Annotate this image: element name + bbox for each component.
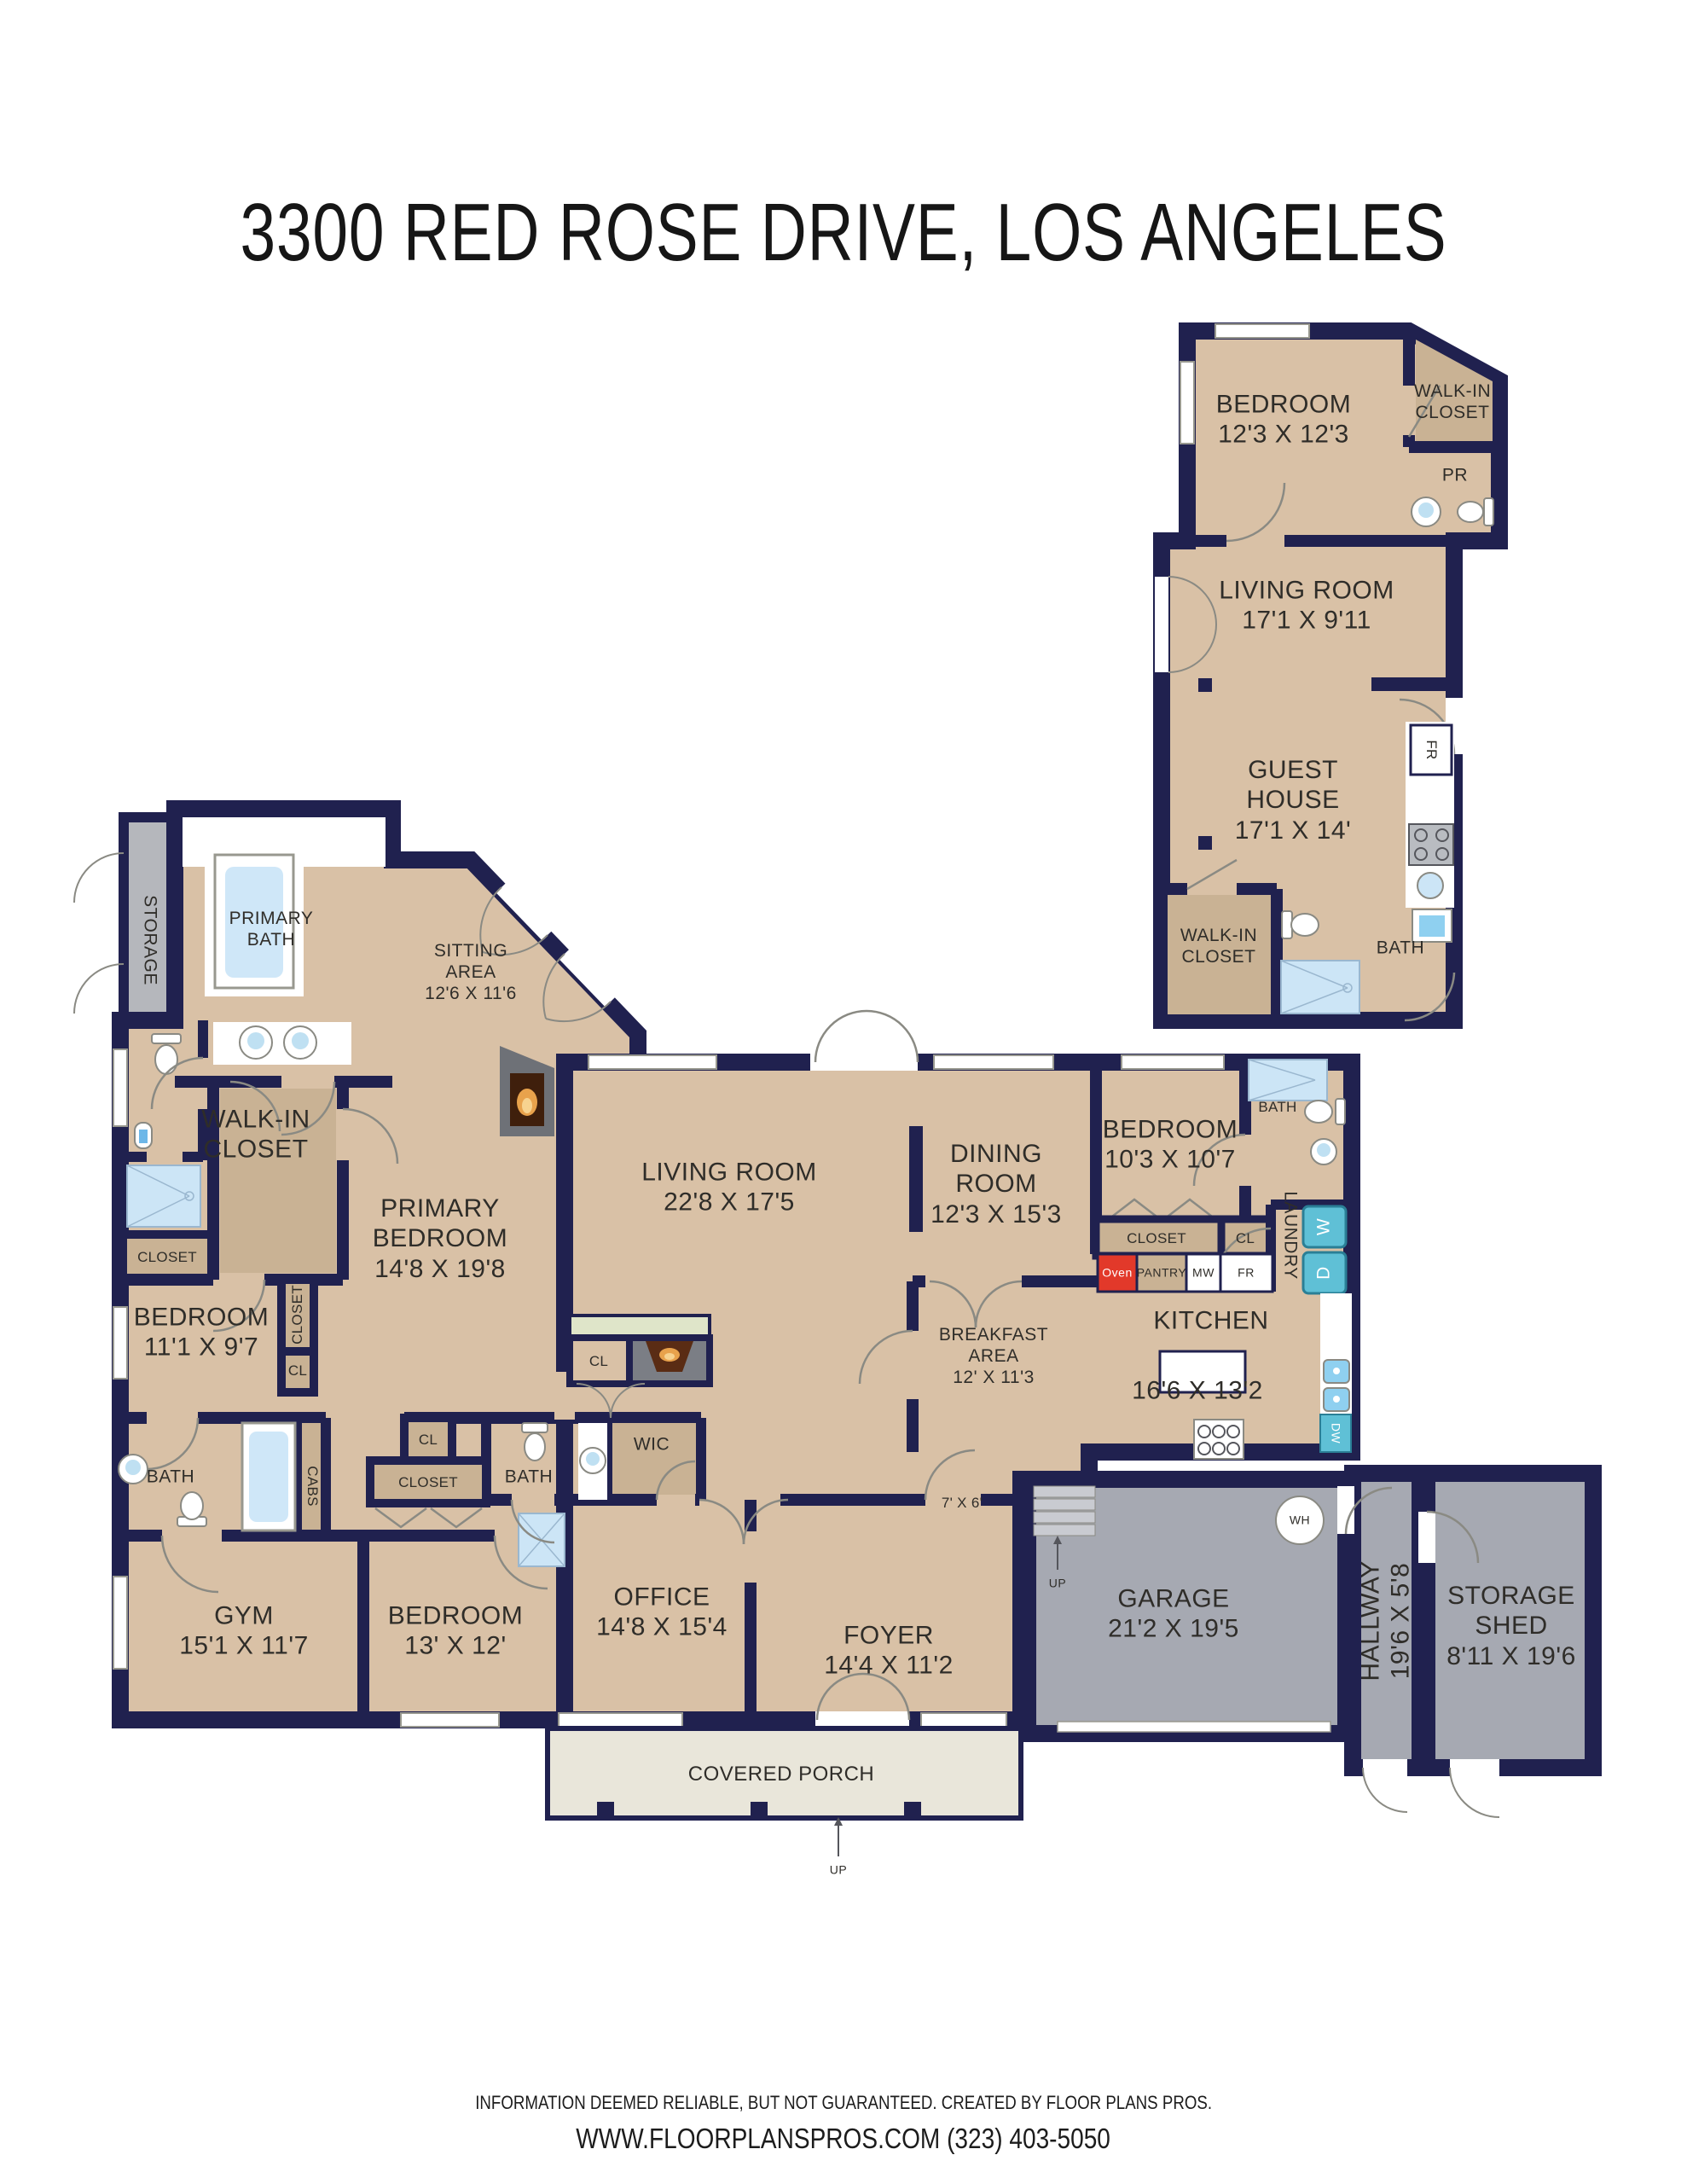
room-label-walk-in-closet: WALK-IN CLOSET [201, 1105, 310, 1165]
room-label-cl-living: CL [589, 1353, 608, 1370]
label-oven: Oven [1102, 1266, 1132, 1281]
room-label-bath1: BATH [147, 1467, 194, 1489]
room-label-guest-bedroom: BEDROOM 12'3 X 12'3 [1216, 390, 1352, 450]
living-fireplace-icon [629, 1338, 710, 1384]
label-water-heater: WH [1290, 1513, 1310, 1528]
room-label-guest-living: LIVING ROOM 17'1 X 9'11 [1219, 576, 1394, 636]
room-label-bedroom4: BEDROOM 13' X 12' [388, 1601, 524, 1662]
covered-porch-area [548, 1728, 1021, 1856]
room-label-foyer: FOYER 14'4 X 11'2 [824, 1621, 954, 1682]
room-label-gym: GYM 15'1 X 11'7 [179, 1601, 309, 1662]
label-fridge: FR [1238, 1266, 1255, 1281]
label-up-porch: UP [830, 1863, 847, 1878]
label-kitchen-dims: 16'6 X 13'2 [1132, 1375, 1263, 1405]
room-label-guest-house: GUEST HOUSE 17'1 X 14' [1235, 755, 1352, 845]
bath1-sink-icon [119, 1455, 148, 1484]
room-label-closet-left: CLOSET [137, 1249, 197, 1266]
room-label-primary-bath: PRIMARY BATH [229, 909, 314, 951]
bath2-sink-icon [580, 1448, 606, 1473]
room-label-wic2: WIC [634, 1435, 670, 1456]
room-label-kitchen: KITCHEN [1153, 1305, 1268, 1335]
room-label-covered-porch: COVERED PORCH [688, 1763, 875, 1786]
floorplan-drawing [0, 0, 1687, 2184]
room-label-storage: STORAGE [139, 895, 160, 985]
guest-bath-sink-icon [1412, 909, 1452, 942]
label-microwave: MW [1192, 1266, 1215, 1281]
label-washer: W [1314, 1218, 1336, 1235]
room-label-primary-bedroom: PRIMARY BEDROOM 14'8 X 19'8 [373, 1194, 508, 1284]
room-label-closet-c: CLOSET [398, 1474, 458, 1491]
guest-kitchen-sink-icon [1417, 873, 1443, 898]
bath2-toilet-icon [522, 1423, 548, 1461]
guest-bath-toilet-icon [1282, 911, 1319, 938]
label-nook-dims: 7' X 6' [942, 1495, 983, 1512]
label-pantry: PANTRY [1137, 1266, 1187, 1281]
label-guest-fridge: FR [1423, 740, 1440, 759]
room-label-cl-c: CL [419, 1432, 438, 1449]
room-label-hallway: HALLWAY 19'6 X 5'8 [1356, 1560, 1417, 1681]
label-up-stairs: UP [1049, 1577, 1066, 1591]
room-label-cl-b: CL [1236, 1230, 1255, 1247]
room-label-bedroom2: BEDROOM 11'1 X 9'7 [134, 1303, 270, 1363]
pr-sink-icon [1412, 497, 1441, 526]
garage-door [1058, 1722, 1330, 1732]
room-label-bath2: BATH [505, 1467, 553, 1489]
room-label-office: OFFICE 14'8 X 15'4 [596, 1583, 728, 1643]
footer-disclaimer: INFORMATION DEEMED RELIABLE, BUT NOT GUA… [0, 2092, 1687, 2114]
room-label-bedroom3: BEDROOM 10'3 X 10'7 [1103, 1115, 1238, 1176]
ensuite-toilet-icon [1305, 1099, 1345, 1124]
room-label-guest-bath: BATH [1377, 938, 1424, 960]
guest-shower-icon [1281, 961, 1359, 1014]
label-dryer: D [1314, 1266, 1336, 1280]
footer-contact: WWW.FLOORPLANSPROS.COM (323) 403-5050 [0, 2123, 1687, 2155]
room-label-guest-walk-in-closet: WALK-IN CLOSET [1414, 381, 1491, 424]
label-cabs: CABS [304, 1466, 321, 1507]
room-label-closet-vertical: CLOSET [289, 1285, 306, 1345]
wc-shower-icon [127, 1165, 200, 1227]
room-label-closet-b: CLOSET [1127, 1230, 1186, 1247]
room-label-cl-a: CL [288, 1362, 307, 1380]
guest-stove-icon [1409, 824, 1453, 865]
wc-accessory-icon [135, 1123, 152, 1148]
room-label-bath-ensuite: BATH [1258, 1099, 1296, 1116]
room-label-breakfast: BREAKFAST AREA 12' X 11'3 [939, 1325, 1048, 1388]
room-label-dining-room: DINING ROOM 12'3 X 15'3 [930, 1139, 1062, 1229]
floorplan-page: 3300 RED ROSE DRIVE, LOS ANGELES [0, 0, 1687, 2184]
room-label-pr: PR [1442, 466, 1468, 487]
room-label-guest-wic2: WALK-IN CLOSET [1180, 926, 1257, 968]
room-label-garage: GARAGE 21'2 X 19'5 [1108, 1584, 1239, 1645]
range-icon [1194, 1420, 1244, 1459]
bath1-tub-icon [242, 1423, 295, 1531]
room-label-laundry: LAUNDRY [1279, 1191, 1301, 1279]
room-label-sitting-area: SITTING AREA 12'6 X 11'6 [425, 941, 517, 1004]
ensuite-shower-icon [1249, 1060, 1327, 1101]
ensuite-sink-icon [1311, 1139, 1336, 1165]
room-label-storage-shed: STORAGE SHED 8'11 X 19'6 [1446, 1581, 1576, 1671]
label-dishwasher: DW [1329, 1423, 1343, 1443]
room-label-living-room: LIVING ROOM 22'8 X 17'5 [641, 1158, 817, 1218]
